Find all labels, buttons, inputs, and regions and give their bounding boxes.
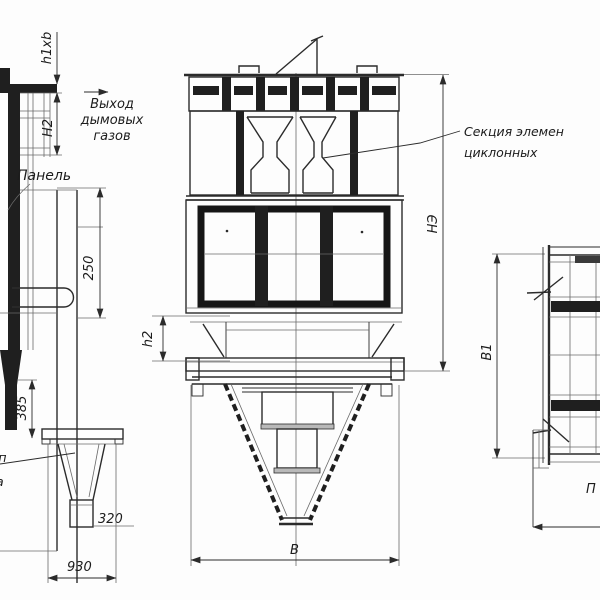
dim-B-label: В [290,543,299,558]
dim-B1-label: В1 [480,343,495,360]
partial-left-line1: уп [0,450,7,465]
clipped-bottom-dimension: П [533,482,600,527]
cyclone-section-note: Секция элемен циклонных [323,124,564,160]
drawing-canvas: h1xb H2 Выход дымовых газов Панель [0,0,600,600]
gas-exit-line2: дымовых [80,113,144,128]
partial-bottom-right-label: П [586,482,596,497]
support-skirt [186,322,404,380]
dimension-H2: H2 [41,93,57,155]
front-view: h2 В [141,36,564,566]
section-label-line1: Секция элемен [464,124,564,139]
dimension-B: В [191,385,399,566]
dim-H2-label: H2 [41,119,56,137]
dimension-385: 385 [15,380,37,438]
dim-NE-label: НЭ [426,215,441,234]
panel-label: Панель [17,168,71,184]
left-side-view: h1xb H2 Выход дымовых газов Панель [0,32,144,583]
dimension-h2: h2 [141,316,230,361]
partial-left-line2: а [0,474,4,489]
hopper [192,377,392,524]
gas-exit-line3: газов [93,129,130,144]
dim-h1xb-label: h1xb [40,32,55,64]
dimension-250: 250 [57,188,106,318]
top-cell-band [189,77,399,111]
main-body [186,200,402,313]
dimension-320: 320 [93,512,134,527]
section-label-line2: циклонных [464,145,538,160]
dimension-NE: НЭ [404,75,450,371]
dim-320-label: 320 [98,512,123,527]
dim-385-label: 385 [15,396,30,421]
gas-exit-line1: Выход [90,97,134,112]
dim-h2-label: h2 [141,331,156,348]
cyclone-elements-section [186,111,404,200]
dimension-B1: В1 [480,254,545,458]
side-pipe [12,288,73,307]
dim-250-label: 250 [82,256,97,281]
dim-930-label: 930 [67,560,92,575]
engineering-drawing-page: h1xb H2 Выход дымовых газов Панель [0,0,600,600]
right-side-view: В1 П [480,245,600,527]
flue-gas-exit-note: Выход дымовых газов [80,92,144,144]
